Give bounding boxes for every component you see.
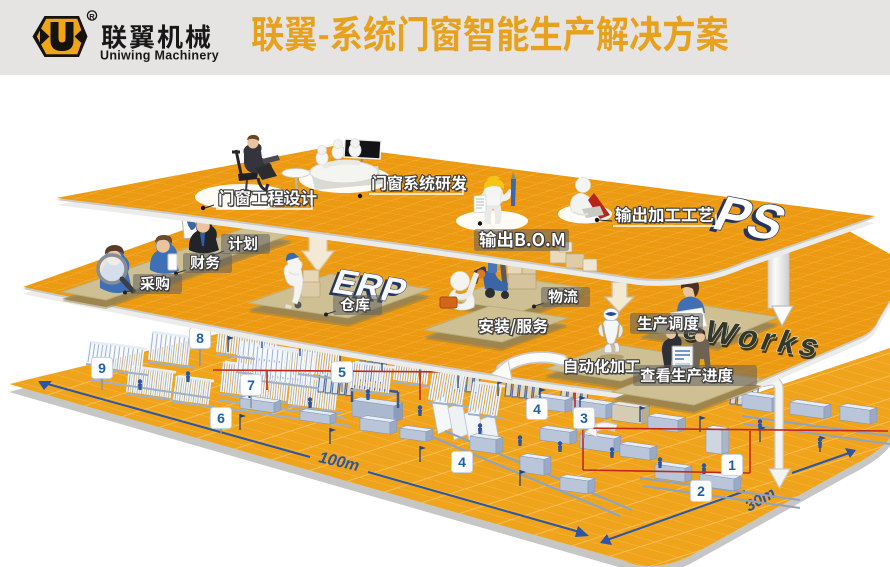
svg-text:5: 5 (338, 364, 346, 380)
svg-text:Uniwing Machinery: Uniwing Machinery (100, 49, 219, 63)
svg-text:9: 9 (98, 360, 106, 376)
svg-text:4: 4 (458, 454, 466, 470)
svg-text:R: R (89, 12, 95, 21)
svg-text:8: 8 (196, 330, 204, 346)
svg-text:4: 4 (533, 401, 541, 417)
svg-text:6: 6 (217, 410, 225, 426)
svg-text:3: 3 (580, 410, 588, 426)
svg-text:7: 7 (247, 377, 255, 393)
svg-text:1: 1 (728, 457, 736, 473)
svg-text:2: 2 (697, 483, 705, 499)
